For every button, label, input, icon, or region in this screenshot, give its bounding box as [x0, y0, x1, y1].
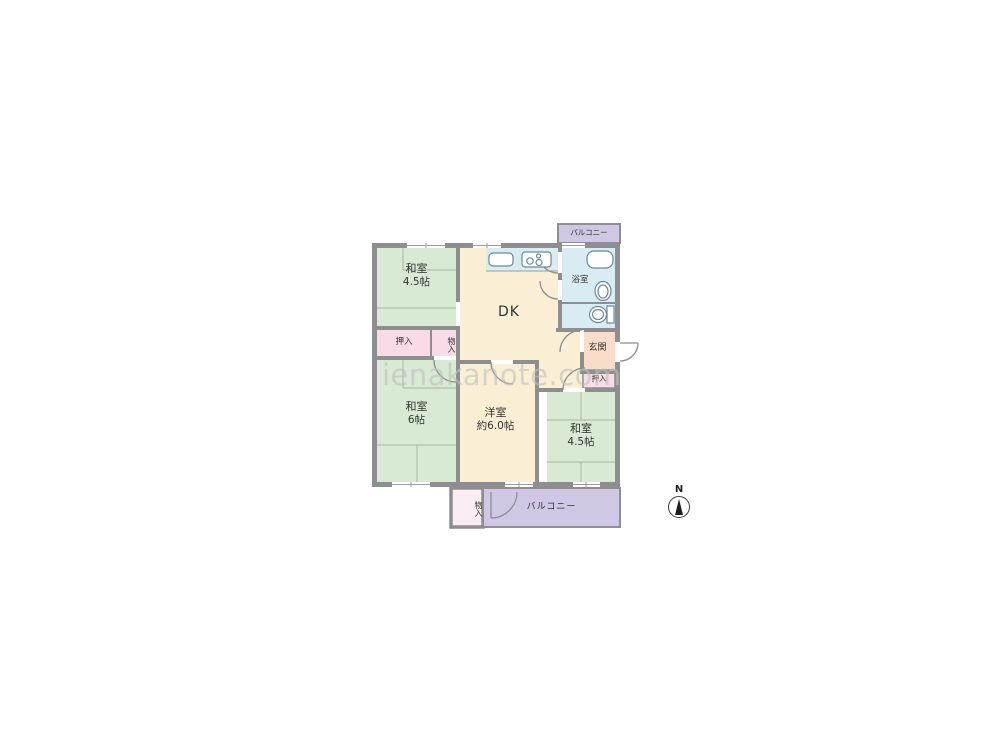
room-name: 和室 [377, 262, 456, 276]
washitsu-tl-floor [377, 248, 456, 330]
washitsu-tl-label: 和室 4.5帖 [377, 262, 456, 289]
room-name: 和室 [377, 400, 456, 414]
washitsu-l-label: 和室 6帖 [377, 400, 456, 427]
room-size: 6帖 [377, 414, 456, 427]
genkan-label: 玄関 [580, 343, 615, 354]
yoshitsu-label: 洋室 約6.0帖 [456, 406, 535, 433]
balcony-top-label: バルコニー [558, 228, 620, 237]
monoire-tl-label: 物入 [431, 332, 456, 357]
balcony-bottom-label: バルコニー [483, 502, 620, 513]
compass: N [664, 484, 694, 518]
bathroom-label: 浴室 [558, 275, 602, 286]
washitsu-r-label: 和室 4.5帖 [547, 422, 615, 449]
side-strip [539, 388, 547, 482]
compass-needle-icon [675, 499, 683, 515]
stove-icon [522, 252, 551, 267]
monoire-b-label: 物入 [451, 496, 483, 522]
oshiire-tl-label: 押入 [377, 337, 431, 348]
compass-north-label: N [664, 484, 694, 495]
room-name: 和室 [547, 422, 615, 436]
room-size: 4.5帖 [377, 276, 456, 289]
bathtub-icon [587, 251, 613, 268]
compass-dial [668, 496, 690, 518]
room-size: 4.5帖 [547, 436, 615, 449]
dk-label: DK [460, 304, 558, 322]
toilet-icon [590, 306, 615, 323]
bath-toilet-divider [558, 302, 615, 304]
room-name: 洋室 [456, 406, 535, 420]
kitchen-sink-icon [489, 253, 513, 266]
room-size: 約6.0帖 [456, 420, 535, 433]
watermark: ienakanote.com [382, 358, 622, 392]
